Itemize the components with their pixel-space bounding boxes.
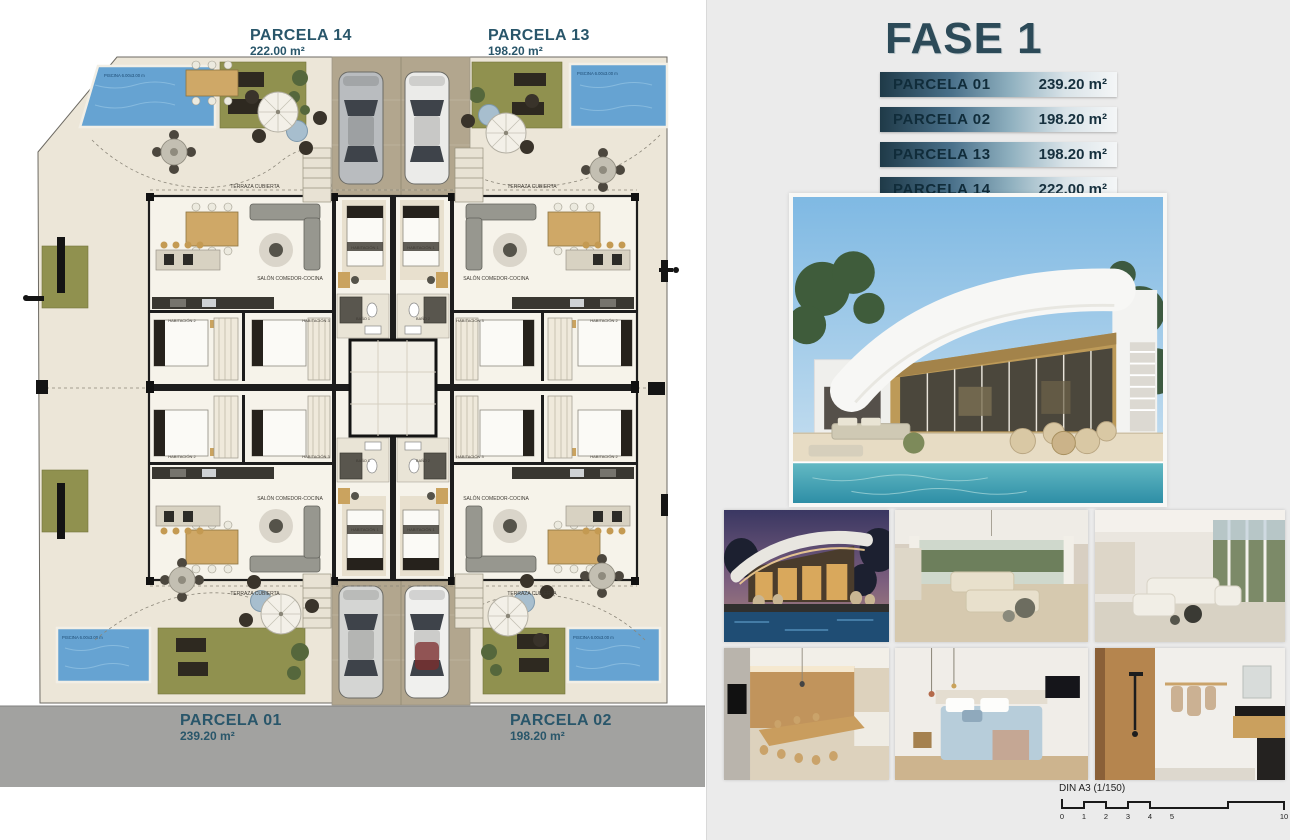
svg-text:HABITACIÓN 1: HABITACIÓN 1	[407, 245, 435, 250]
svg-text:SALÓN COMEDOR-COCINA: SALÓN COMEDOR-COCINA	[257, 495, 323, 502]
svg-text:HABITACIÓN 1: HABITACIÓN 1	[351, 527, 379, 532]
svg-text:TERRAZA CUBIERTA: TERRAZA CUBIERTA	[230, 591, 280, 597]
svg-text:HABITACIÓN 2: HABITACIÓN 2	[168, 318, 196, 323]
page-title: FASE 1	[885, 14, 1043, 64]
table-row: PARCELA 01 239.20 m²	[880, 72, 1117, 97]
pool-label: PISCINA 6.00x3.00 m	[573, 635, 614, 640]
parcel-area: 198.20 m²	[510, 730, 612, 744]
svg-text:TERRAZA CUBIERTA: TERRAZA CUBIERTA	[507, 591, 557, 597]
thumbnail-living-room-interior	[1095, 510, 1285, 642]
scale-bar-graphic: 0 1 2 3 4 5 10	[1059, 795, 1290, 821]
svg-text:SALÓN COMEDOR-COCINA: SALÓN COMEDOR-COCINA	[463, 495, 529, 502]
info-panel: FASE 1 PARCELA 01 239.20 m² PARCELA 02 1…	[706, 0, 1290, 840]
parcel-name: PARCELA 14	[250, 27, 352, 45]
parcel-area: 198.20 m²	[488, 45, 590, 59]
thumbnail-bedroom-interior	[895, 648, 1088, 780]
svg-text:10: 10	[1280, 812, 1288, 821]
svg-text:HABITACIÓN 3: HABITACIÓN 3	[456, 454, 484, 459]
svg-text:SALÓN COMEDOR-COCINA: SALÓN COMEDOR-COCINA	[257, 275, 323, 282]
pool-label: PISCINA 6.00x3.00 m	[577, 71, 618, 76]
svg-text:HABITACIÓN 1: HABITACIÓN 1	[407, 527, 435, 532]
thumbnail-night-pool-exterior	[724, 510, 889, 642]
row-parcel: PARCELA 02	[880, 111, 991, 128]
svg-text:0: 0	[1060, 812, 1064, 821]
parcel-name: PARCELA 02	[510, 712, 612, 730]
svg-text:HABITACIÓN 1: HABITACIÓN 1	[351, 245, 379, 250]
parcel-label-13: PARCELA 13 198.20 m²	[488, 27, 590, 59]
villa-exterior-illustration	[793, 197, 1163, 503]
svg-text:5: 5	[1170, 812, 1174, 821]
thumbnail-kitchen-dining-interior	[724, 648, 889, 780]
parcel-area: 222.00 m²	[250, 45, 352, 59]
svg-text:BAÑO 2: BAÑO 2	[416, 316, 430, 321]
svg-text:HABITACIÓN 2: HABITACIÓN 2	[590, 454, 618, 459]
site-plan: PISCINA 6.00x3.00 m PISCINA 6.00x3.00 m …	[0, 0, 705, 790]
floor-plan-area: PISCINA 6.00x3.00 m PISCINA 6.00x3.00 m …	[0, 0, 705, 840]
brochure-page: { "page": {"left_bg": "#ffffff", "panel_…	[0, 0, 1290, 840]
svg-text:HABITACIÓN 3: HABITACIÓN 3	[302, 318, 330, 323]
svg-text:4: 4	[1148, 812, 1152, 821]
parcel-table: PARCELA 01 239.20 m² PARCELA 02 198.20 m…	[880, 72, 1120, 212]
svg-text:HABITACIÓN 2: HABITACIÓN 2	[168, 454, 196, 459]
svg-text:HABITACIÓN 2: HABITACIÓN 2	[590, 318, 618, 323]
pool-label: PISCINA 6.00x3.00 m	[62, 635, 103, 640]
svg-text:BAÑO 1: BAÑO 1	[356, 316, 370, 321]
svg-text:2: 2	[1104, 812, 1108, 821]
scale-label: DIN A3 (1/150)	[1059, 783, 1290, 794]
thumbnail-terrace-lounge-interior	[895, 510, 1088, 642]
table-row: PARCELA 13 198.20 m²	[880, 142, 1117, 167]
parcel-area: 239.20 m²	[180, 730, 282, 744]
row-parcel: PARCELA 01	[880, 76, 991, 93]
parcel-name: PARCELA 01	[180, 712, 282, 730]
parcel-name: PARCELA 13	[488, 27, 590, 45]
svg-text:HABITACIÓN 3: HABITACIÓN 3	[302, 454, 330, 459]
svg-text:TERRAZA CUBIERTA: TERRAZA CUBIERTA	[230, 184, 280, 190]
hero-villa-render	[789, 193, 1167, 507]
parcel-label-02: PARCELA 02 198.20 m²	[510, 712, 612, 744]
svg-text:SALÓN COMEDOR-COCINA: SALÓN COMEDOR-COCINA	[463, 275, 529, 282]
pool-label: PISCINA 6.00x3.00 m	[104, 73, 145, 78]
thumbnail-bathroom-interior	[1095, 648, 1285, 780]
svg-text:BAÑO 2: BAÑO 2	[416, 458, 430, 463]
row-area: 198.20 m²	[1039, 111, 1117, 128]
svg-text:BAÑO 1: BAÑO 1	[356, 458, 370, 463]
row-area: 239.20 m²	[1039, 76, 1117, 93]
svg-text:TERRAZA CUBIERTA: TERRAZA CUBIERTA	[507, 184, 557, 190]
parcel-label-01: PARCELA 01 239.20 m²	[180, 712, 282, 744]
table-row: PARCELA 02 198.20 m²	[880, 107, 1117, 132]
row-area: 198.20 m²	[1039, 146, 1117, 163]
svg-text:HABITACIÓN 3: HABITACIÓN 3	[456, 318, 484, 323]
svg-text:3: 3	[1126, 812, 1130, 821]
row-parcel: PARCELA 13	[880, 146, 991, 163]
svg-text:1: 1	[1082, 812, 1086, 821]
scale-bar: DIN A3 (1/150) 0 1 2 3 4 5 10	[1059, 783, 1290, 821]
parcel-label-14: PARCELA 14 222.00 m²	[250, 27, 352, 59]
